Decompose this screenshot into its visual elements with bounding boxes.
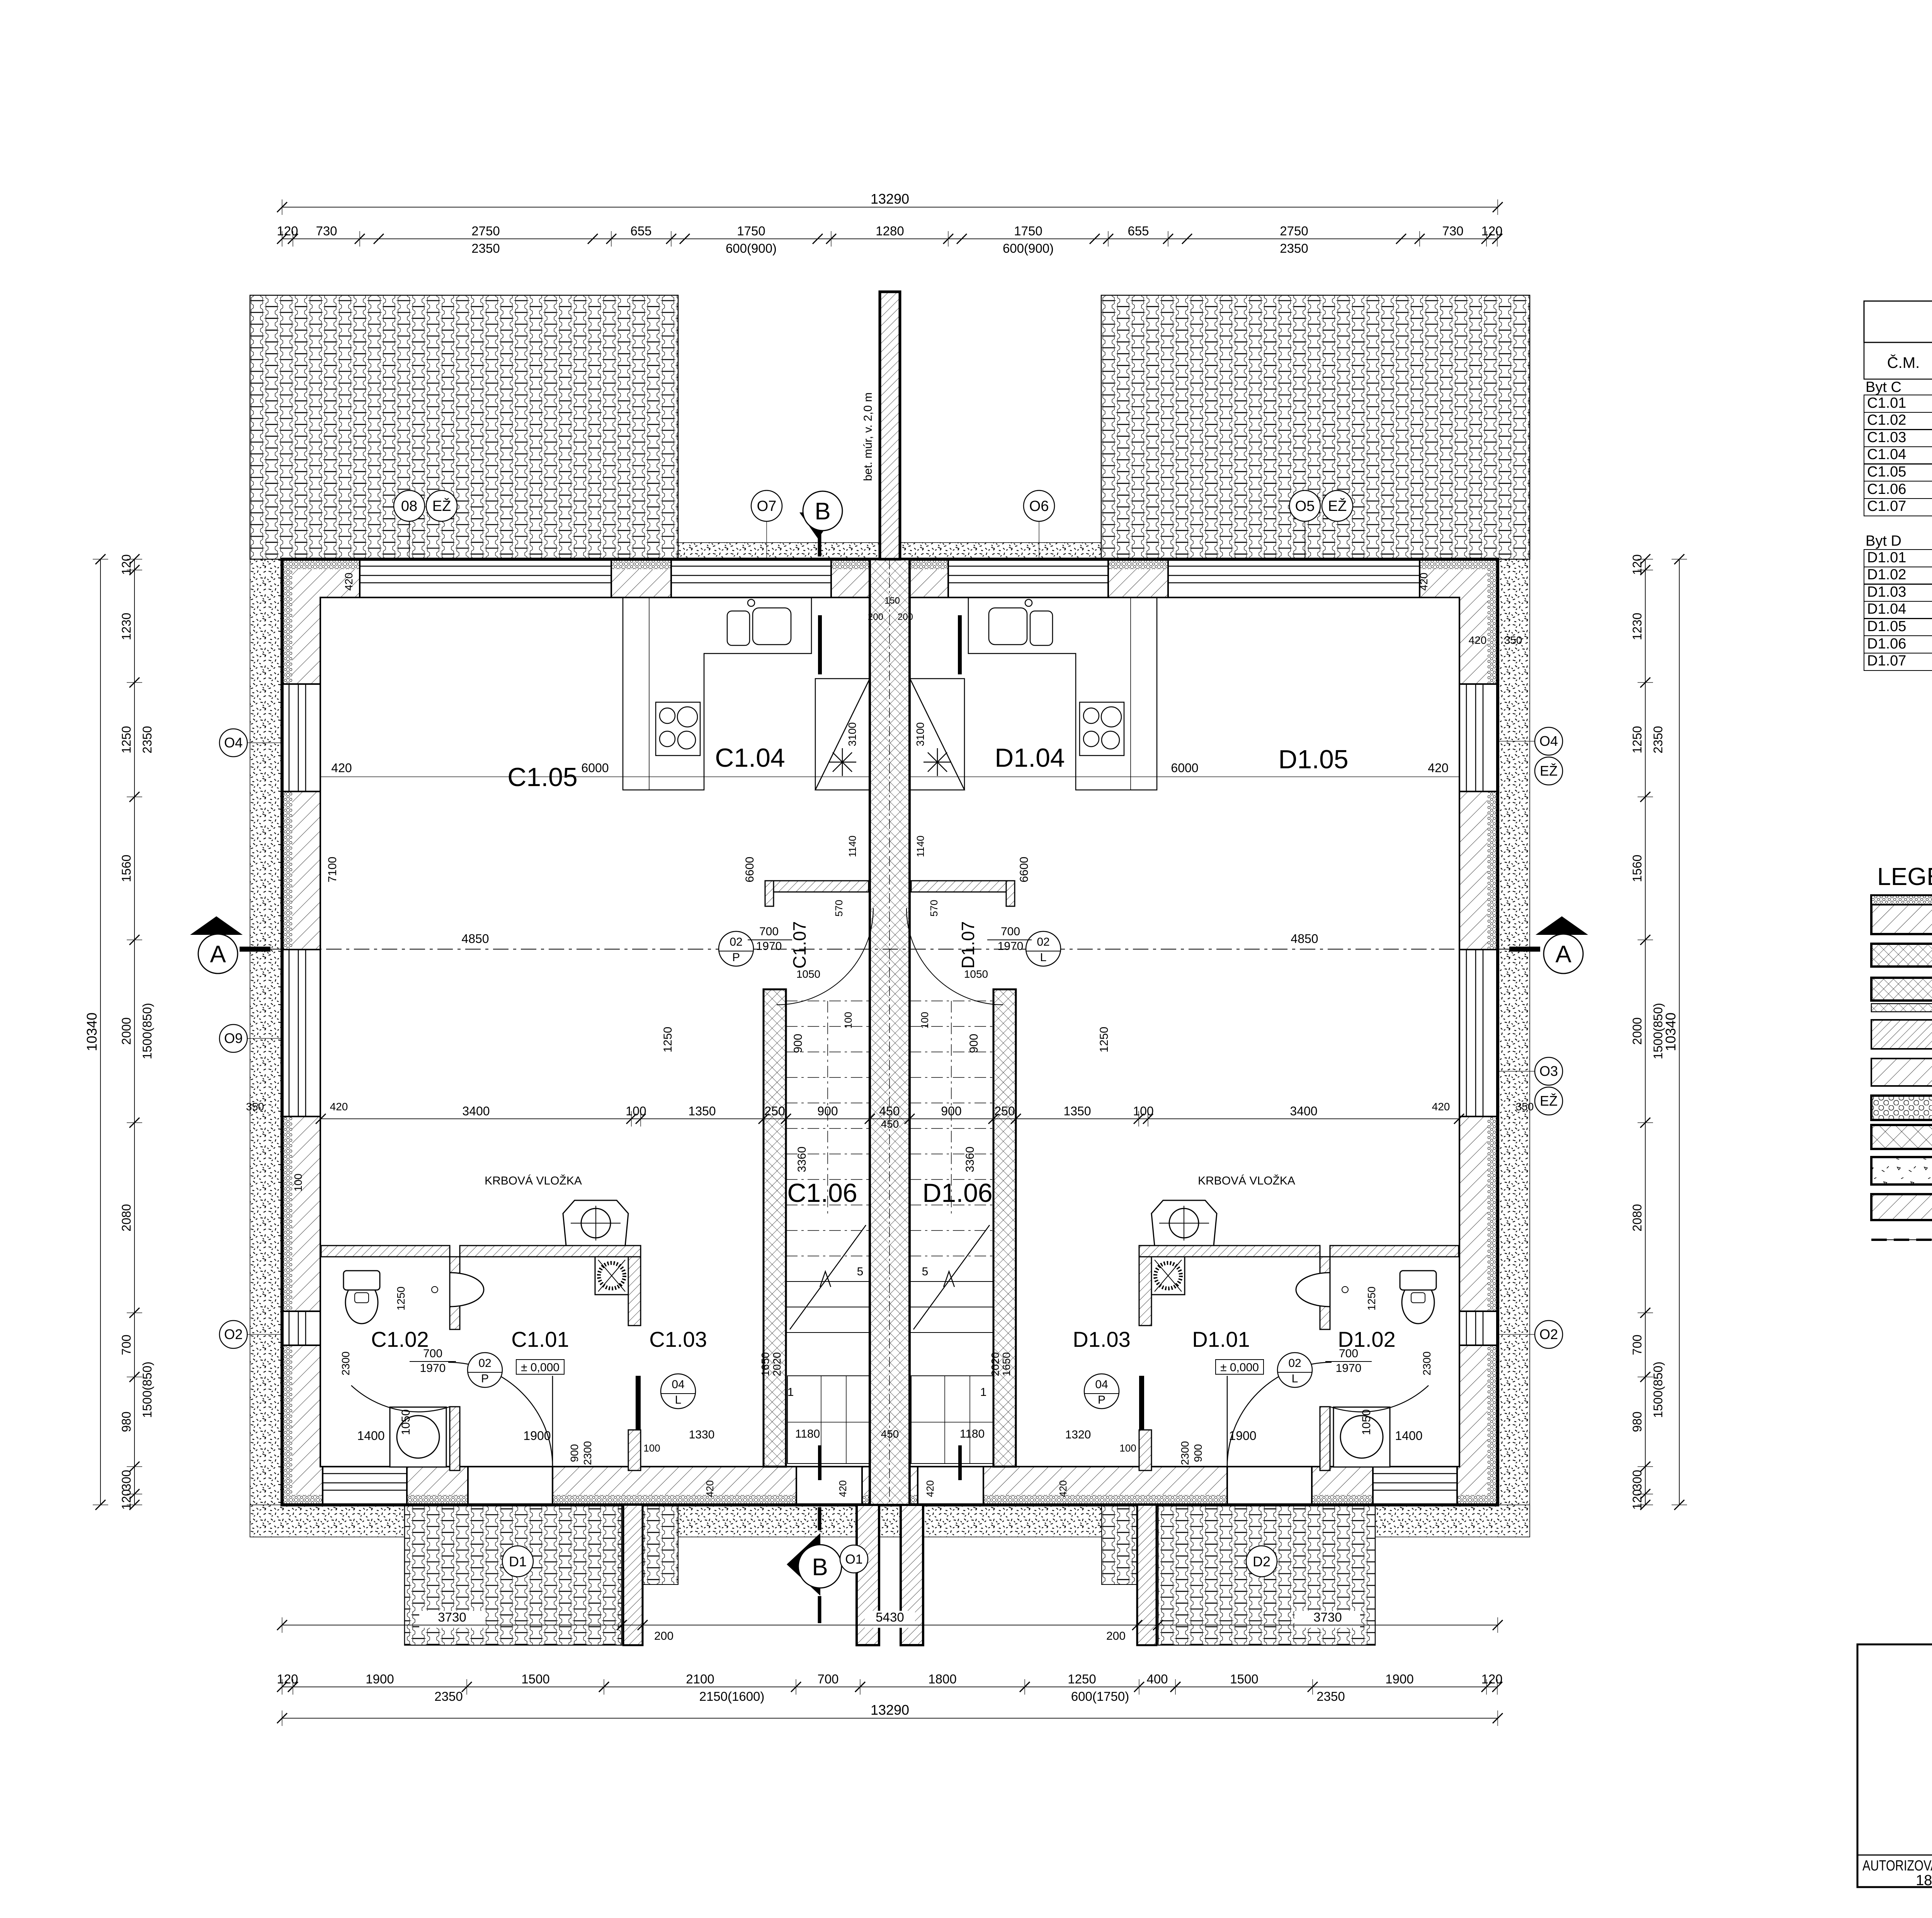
svg-text:2350: 2350	[1316, 1689, 1345, 1704]
svg-text:2350: 2350	[1651, 726, 1665, 753]
svg-text:Byt D: Byt D	[1866, 533, 1901, 549]
svg-text:120: 120	[277, 224, 298, 238]
svg-text:1280: 1280	[876, 224, 904, 238]
svg-text:EŽ: EŽ	[1540, 1093, 1558, 1109]
svg-text:350: 350	[1516, 1101, 1534, 1113]
svg-text:1050: 1050	[796, 968, 820, 980]
svg-text:2300: 2300	[1179, 1441, 1191, 1465]
svg-text:4850: 4850	[1291, 932, 1318, 946]
svg-text:250: 250	[994, 1104, 1015, 1118]
svg-text:1900: 1900	[523, 1429, 551, 1443]
svg-text:2100: 2100	[686, 1672, 714, 1686]
svg-text:C1.06: C1.06	[787, 1178, 857, 1208]
svg-text:300: 300	[119, 1470, 133, 1490]
svg-text:O7: O7	[757, 498, 777, 514]
svg-text:1050: 1050	[400, 1409, 412, 1435]
svg-text:1900: 1900	[366, 1672, 394, 1686]
svg-text:1050: 1050	[1360, 1409, 1373, 1435]
svg-text:700: 700	[759, 925, 779, 938]
svg-text:700: 700	[817, 1672, 838, 1686]
svg-text:1900: 1900	[1385, 1672, 1413, 1686]
svg-text:100: 100	[842, 1012, 854, 1028]
svg-text:O5: O5	[1295, 498, 1315, 514]
svg-text:A: A	[1555, 941, 1571, 968]
svg-text:450: 450	[881, 1428, 899, 1440]
svg-text:100: 100	[1119, 1442, 1136, 1454]
svg-text:02: 02	[730, 936, 742, 948]
svg-text:13290: 13290	[871, 191, 909, 207]
svg-text:O3: O3	[1539, 1063, 1558, 1079]
svg-text:6600: 6600	[743, 857, 756, 883]
svg-text:O9: O9	[224, 1030, 243, 1046]
svg-text:1500(850): 1500(850)	[1651, 1361, 1665, 1418]
svg-text:D1.05: D1.05	[1278, 745, 1348, 774]
svg-text:570: 570	[928, 900, 940, 916]
svg-text:600(1750): 600(1750)	[1071, 1689, 1129, 1704]
svg-text:200: 200	[1106, 1630, 1126, 1642]
svg-text:6600: 6600	[1018, 857, 1031, 883]
svg-text:420: 420	[1428, 761, 1448, 775]
svg-text:420: 420	[331, 761, 352, 775]
svg-text:L: L	[1040, 951, 1047, 964]
svg-text:7100: 7100	[326, 857, 339, 883]
svg-text:600(900): 600(900)	[1003, 241, 1054, 255]
svg-text:1330: 1330	[689, 1428, 715, 1441]
svg-text:± 0,000: ± 0,000	[521, 1361, 560, 1374]
svg-text:6000: 6000	[581, 761, 609, 775]
svg-text:1250: 1250	[1630, 726, 1644, 753]
svg-text:1800: 1800	[928, 1672, 956, 1686]
svg-text:3360: 3360	[964, 1147, 976, 1173]
svg-text:1560: 1560	[1630, 854, 1644, 882]
svg-text:D1.02: D1.02	[1338, 1327, 1395, 1351]
svg-text:655: 655	[630, 224, 651, 238]
svg-text:120: 120	[1630, 1489, 1644, 1510]
svg-text:700: 700	[119, 1334, 133, 1355]
svg-text:700: 700	[1630, 1334, 1644, 1355]
svg-text:5: 5	[922, 1265, 929, 1278]
svg-text:C1.05: C1.05	[507, 762, 577, 792]
svg-text:900: 900	[968, 1034, 980, 1053]
svg-text:D1.06: D1.06	[1867, 636, 1906, 652]
svg-text:1250: 1250	[119, 726, 133, 753]
svg-text:120: 120	[119, 1489, 133, 1510]
svg-text:100: 100	[1133, 1104, 1153, 1118]
svg-text:D1.03: D1.03	[1073, 1327, 1130, 1351]
svg-text:2300: 2300	[340, 1351, 352, 1375]
svg-text:O2: O2	[1539, 1326, 1558, 1342]
svg-text:2300: 2300	[582, 1441, 594, 1465]
svg-text:D1: D1	[509, 1554, 527, 1569]
svg-text:1560: 1560	[119, 854, 133, 882]
svg-text:655: 655	[1128, 224, 1149, 238]
svg-text:C1.03: C1.03	[649, 1327, 707, 1351]
svg-text:1400: 1400	[1395, 1429, 1422, 1443]
svg-text:450: 450	[879, 1104, 900, 1118]
svg-text:2350: 2350	[140, 726, 154, 753]
svg-text:150: 150	[884, 596, 900, 606]
svg-text:730: 730	[316, 224, 337, 238]
svg-text:2000: 2000	[119, 1017, 133, 1045]
svg-text:5430: 5430	[876, 1610, 904, 1624]
svg-text:1500(850): 1500(850)	[140, 1003, 154, 1059]
svg-text:420: 420	[704, 1480, 716, 1497]
svg-text:C1.04: C1.04	[1867, 446, 1906, 463]
svg-text:3100: 3100	[914, 722, 926, 746]
svg-text:2300: 2300	[1421, 1351, 1433, 1375]
svg-text:2750: 2750	[1280, 224, 1308, 238]
svg-text:10340: 10340	[84, 1013, 100, 1051]
svg-text:B: B	[815, 498, 830, 525]
svg-text:1810 AA: 1810 AA	[1916, 1872, 1932, 1889]
svg-text:1180: 1180	[960, 1428, 985, 1440]
svg-text:900: 900	[817, 1104, 838, 1118]
svg-text:O4: O4	[1539, 733, 1558, 749]
svg-text:120: 120	[1481, 1672, 1502, 1686]
svg-text:120: 120	[1481, 224, 1502, 238]
svg-text:C1.07: C1.07	[789, 921, 810, 969]
svg-text:D1.01: D1.01	[1867, 550, 1906, 566]
svg-text:10340: 10340	[1663, 1013, 1679, 1051]
svg-text:2150(1600): 2150(1600)	[699, 1689, 765, 1704]
svg-text:D1.07: D1.07	[958, 921, 978, 969]
svg-text:2000: 2000	[1630, 1017, 1644, 1045]
svg-text:3100: 3100	[846, 722, 858, 746]
svg-text:2350: 2350	[434, 1689, 463, 1704]
svg-text:08: 08	[401, 498, 417, 514]
svg-text:02: 02	[1288, 1357, 1301, 1370]
svg-text:1970: 1970	[1336, 1362, 1362, 1375]
svg-text:D1.06: D1.06	[922, 1178, 992, 1208]
svg-text:570: 570	[833, 900, 845, 916]
svg-text:1250: 1250	[1098, 1027, 1111, 1053]
svg-text:C1.07: C1.07	[1867, 498, 1906, 514]
svg-text:1750: 1750	[737, 224, 765, 238]
svg-text:AUTORIZOVANÝ ARCHITEKT: AUTORIZOVANÝ ARCHITEKT	[1862, 1857, 1932, 1874]
svg-text:5: 5	[857, 1265, 864, 1278]
svg-text:900: 900	[568, 1444, 580, 1462]
svg-text:C1.03: C1.03	[1867, 429, 1906, 446]
svg-text:± 0,000: ± 0,000	[1220, 1361, 1259, 1374]
svg-text:700: 700	[1001, 925, 1020, 938]
svg-text:L: L	[675, 1394, 682, 1406]
svg-text:900: 900	[1192, 1444, 1204, 1462]
svg-text:KRBOVÁ VLOŽKA: KRBOVÁ VLOŽKA	[1198, 1174, 1295, 1187]
svg-text:P: P	[481, 1372, 489, 1385]
svg-text:1500: 1500	[1230, 1672, 1258, 1686]
svg-text:420: 420	[330, 1101, 348, 1113]
svg-text:420: 420	[1418, 573, 1430, 591]
svg-text:O2: O2	[224, 1326, 243, 1342]
svg-text:420: 420	[837, 1480, 849, 1497]
svg-text:D1.02: D1.02	[1867, 567, 1906, 583]
svg-text:120: 120	[1630, 554, 1644, 575]
svg-text:1350: 1350	[1063, 1104, 1091, 1118]
svg-text:6000: 6000	[1171, 761, 1198, 775]
svg-text:EŽ: EŽ	[1328, 498, 1347, 514]
svg-text:P: P	[1098, 1394, 1105, 1406]
svg-text:1350: 1350	[688, 1104, 716, 1118]
svg-text:420: 420	[924, 1480, 936, 1497]
svg-text:B: B	[812, 1554, 828, 1581]
svg-text:1970: 1970	[420, 1362, 446, 1375]
svg-text:1500: 1500	[521, 1672, 549, 1686]
svg-text:100: 100	[643, 1442, 660, 1454]
svg-text:D1.04: D1.04	[1867, 601, 1906, 617]
svg-text:100: 100	[292, 1174, 304, 1192]
svg-text:1050: 1050	[964, 968, 988, 980]
svg-text:D1.01: D1.01	[1192, 1327, 1250, 1351]
svg-text:2080: 2080	[1630, 1204, 1644, 1231]
svg-text:980: 980	[1630, 1411, 1644, 1432]
svg-text:C1.04: C1.04	[715, 743, 785, 773]
svg-text:O4: O4	[224, 735, 243, 751]
svg-text:980: 980	[119, 1411, 133, 1432]
svg-text:C1.05: C1.05	[1867, 464, 1906, 480]
svg-text:1900: 1900	[1229, 1429, 1256, 1443]
svg-text:C1.01: C1.01	[511, 1327, 569, 1351]
svg-text:2350: 2350	[471, 241, 500, 255]
svg-text:450: 450	[881, 1118, 899, 1130]
svg-text:900: 900	[792, 1034, 804, 1053]
svg-text:02: 02	[478, 1357, 491, 1370]
svg-text:2750: 2750	[471, 224, 500, 238]
svg-text:O1: O1	[845, 1552, 862, 1567]
svg-text:1250: 1250	[662, 1027, 674, 1053]
svg-text:730: 730	[1442, 224, 1463, 238]
svg-text:1: 1	[787, 1386, 794, 1399]
svg-text:Byt C: Byt C	[1866, 379, 1901, 395]
svg-text:420: 420	[1432, 1101, 1450, 1113]
svg-text:1970: 1970	[998, 940, 1024, 953]
svg-text:EŽ: EŽ	[1540, 763, 1558, 779]
svg-text:O6: O6	[1029, 498, 1049, 514]
svg-text:400: 400	[1146, 1672, 1168, 1686]
svg-text:1500(850): 1500(850)	[140, 1361, 154, 1418]
svg-text:3730: 3730	[438, 1610, 466, 1624]
svg-text:P: P	[732, 951, 740, 964]
svg-text:1180: 1180	[795, 1428, 820, 1440]
svg-text:C1.06: C1.06	[1867, 481, 1906, 497]
svg-text:L: L	[1292, 1372, 1298, 1385]
svg-text:D1.03: D1.03	[1867, 584, 1906, 600]
svg-text:3730: 3730	[1313, 1610, 1342, 1624]
svg-text:1650: 1650	[1000, 1352, 1012, 1376]
svg-text:3360: 3360	[796, 1147, 808, 1173]
svg-text:KRBOVÁ VLOŽKA: KRBOVÁ VLOŽKA	[485, 1174, 582, 1187]
svg-text:bet. múr, v. 2,0 m: bet. múr, v. 2,0 m	[862, 392, 874, 481]
svg-text:1970: 1970	[756, 940, 782, 953]
svg-text:2020: 2020	[771, 1352, 783, 1376]
svg-text:1: 1	[980, 1386, 987, 1399]
svg-text:420: 420	[1469, 634, 1487, 646]
svg-text:1250: 1250	[1068, 1672, 1096, 1686]
svg-text:D1.05: D1.05	[1867, 618, 1906, 635]
svg-text:13290: 13290	[871, 1702, 909, 1718]
svg-text:C1.01: C1.01	[1867, 395, 1906, 411]
svg-text:4850: 4850	[461, 932, 489, 946]
svg-text:02: 02	[1037, 936, 1049, 948]
svg-text:C1.02: C1.02	[1867, 412, 1906, 428]
svg-text:1750: 1750	[1014, 224, 1042, 238]
svg-text:LEGENDA MATERIÁLOV: LEGENDA MATERIÁLOV	[1877, 863, 1932, 890]
svg-text:1140: 1140	[915, 836, 926, 857]
svg-text:Č.M.: Č.M.	[1887, 354, 1920, 371]
svg-text:100: 100	[919, 1012, 930, 1028]
svg-text:2350: 2350	[1280, 241, 1308, 255]
svg-text:EŽ: EŽ	[432, 498, 451, 514]
svg-text:420: 420	[343, 573, 355, 591]
svg-text:1400: 1400	[357, 1429, 384, 1443]
svg-text:3400: 3400	[462, 1104, 490, 1118]
svg-text:C1.02: C1.02	[371, 1327, 429, 1351]
svg-text:600(900): 600(900)	[726, 241, 777, 255]
svg-text:1650: 1650	[759, 1352, 771, 1376]
svg-text:D1.07: D1.07	[1867, 653, 1906, 669]
svg-text:250: 250	[764, 1104, 785, 1118]
svg-text:420: 420	[1057, 1480, 1069, 1497]
svg-text:D2: D2	[1253, 1554, 1270, 1569]
svg-text:3400: 3400	[1290, 1104, 1317, 1118]
svg-text:04: 04	[1095, 1378, 1108, 1391]
svg-text:1230: 1230	[1630, 613, 1644, 640]
svg-text:A: A	[210, 941, 226, 968]
svg-text:200: 200	[654, 1630, 673, 1642]
svg-text:1230: 1230	[119, 613, 133, 640]
svg-text:1140: 1140	[847, 836, 858, 857]
svg-text:1250: 1250	[1366, 1287, 1378, 1310]
svg-text:2020: 2020	[989, 1352, 1001, 1376]
svg-text:D1.04: D1.04	[995, 743, 1065, 773]
svg-text:1320: 1320	[1065, 1428, 1091, 1441]
svg-text:350: 350	[1504, 634, 1522, 646]
svg-text:300: 300	[1630, 1470, 1644, 1490]
svg-text:120: 120	[277, 1672, 298, 1686]
svg-text:900: 900	[941, 1104, 961, 1118]
svg-text:350: 350	[246, 1101, 264, 1113]
svg-text:04: 04	[672, 1378, 684, 1391]
svg-text:120: 120	[119, 554, 133, 575]
svg-text:2080: 2080	[119, 1204, 133, 1231]
svg-text:1250: 1250	[395, 1287, 407, 1310]
svg-text:200: 200	[868, 612, 883, 622]
svg-text:200: 200	[898, 612, 913, 622]
svg-text:100: 100	[626, 1104, 646, 1118]
